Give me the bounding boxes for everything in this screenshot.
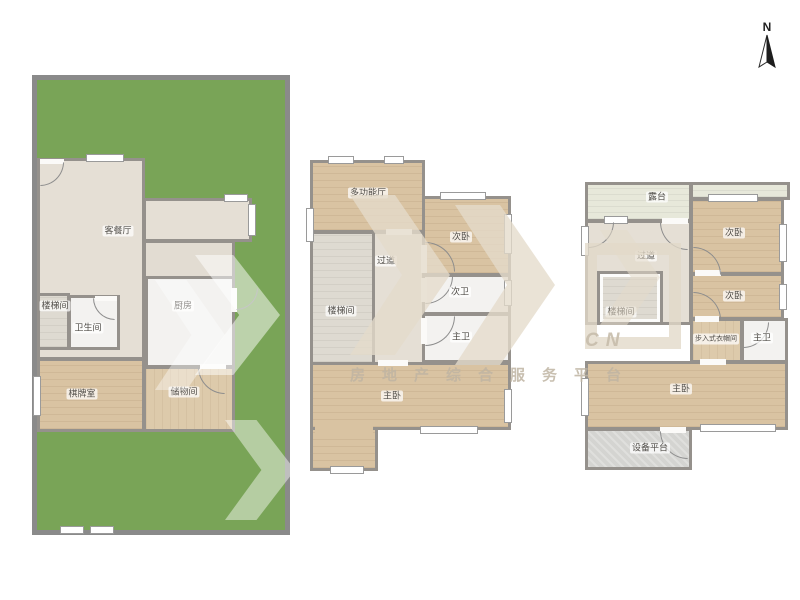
window: [420, 426, 478, 434]
floor3-terrace: [585, 182, 692, 222]
room-label-stair: 楼梯间: [325, 306, 356, 317]
window: [581, 378, 589, 416]
window: [306, 208, 314, 242]
watermark-domain: CN: [585, 330, 626, 352]
room-label-storage: 储物间: [168, 387, 199, 398]
floor1-hall-east-upper: [143, 198, 252, 242]
window: [779, 284, 787, 310]
window: [504, 280, 512, 306]
window: [384, 156, 404, 164]
floor2-staircase: [310, 231, 375, 365]
room-label-bedroom-b: 次卧: [723, 291, 745, 302]
window: [700, 424, 776, 432]
door-opening: [386, 229, 412, 235]
room-label-bedroom2: 次卧: [450, 232, 472, 243]
room-label-bath-second: 次卫: [449, 287, 471, 298]
floor3-master-bedroom: [585, 361, 788, 430]
compass-needle-icon: [756, 34, 778, 70]
garden-gate: [60, 526, 84, 534]
room-label-corridor: 过道: [375, 256, 397, 267]
room-label-game-room: 棋牌室: [66, 389, 97, 400]
floor2-master-bay: [310, 427, 378, 471]
window: [224, 194, 248, 202]
room-label-stair: 楼梯间: [605, 307, 636, 318]
floor1-kitchen: [145, 276, 235, 368]
floor2-master-bedroom: [310, 362, 511, 430]
garden-gate: [90, 526, 114, 534]
window: [504, 214, 512, 254]
door-opening: [700, 359, 726, 365]
floor-seam-patch: [315, 424, 373, 433]
window: [33, 376, 41, 416]
door-opening: [378, 360, 408, 366]
room-label-kitchen: 厨房: [172, 301, 194, 312]
window: [504, 389, 512, 423]
window: [248, 204, 256, 236]
room-label-closet: 步入式衣帽间: [693, 334, 739, 345]
window: [86, 154, 124, 162]
room-label-master: 主卧: [381, 391, 403, 402]
room-label-bath-master: 主卫: [450, 332, 472, 343]
compass: N: [750, 20, 784, 76]
room-label-equipment: 设备平台: [630, 443, 670, 454]
window: [779, 224, 787, 262]
room-label-bedroom-a: 次卧: [723, 228, 745, 239]
window: [708, 194, 758, 202]
room-label-terrace: 露台: [646, 192, 668, 203]
compass-north-label: N: [750, 20, 784, 34]
room-label-multi: 多功能厅: [348, 188, 388, 199]
room-label-stair: 楼梯间: [39, 301, 70, 312]
window: [328, 156, 354, 164]
floor2-corridor: [372, 231, 425, 365]
room-label-bath: 卫生间: [72, 323, 103, 334]
room-label-living: 客餐厅: [102, 226, 133, 237]
room-label-corridor: 过道: [635, 251, 657, 262]
room-label-bath-master: 主卫: [751, 333, 773, 344]
room-label-master: 主卧: [670, 384, 692, 395]
window: [330, 466, 364, 474]
window: [440, 192, 486, 200]
floorplan-page: 客餐厅 楼梯间 卫生间 厨房 棋牌室 储物间 多功能厅 次卧 过道 楼梯间 次卫…: [0, 0, 800, 600]
